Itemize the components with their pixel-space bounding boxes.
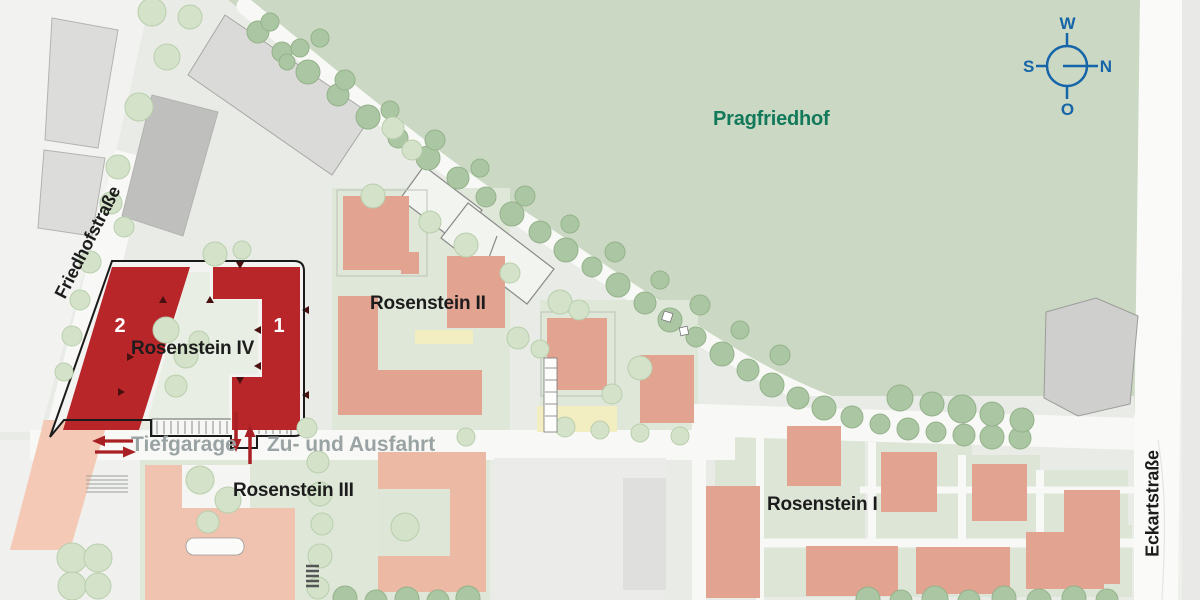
building-number-1: 1: [267, 315, 291, 338]
compass-rose-icon: W S N O: [1020, 16, 1115, 120]
compass-east: O: [1020, 100, 1115, 120]
compass-north: N: [1100, 57, 1112, 77]
church-building: [1044, 298, 1138, 416]
building-number-2: 2: [108, 315, 132, 338]
compass-west: W: [1020, 14, 1115, 34]
label-rosenstein-i: Rosenstein I: [767, 494, 878, 516]
label-rosenstein-iii: Rosenstein III: [233, 480, 354, 502]
site-plan: Pragfriedhof Rosenstein IV Rosenstein II…: [0, 0, 1200, 600]
label-eckartstrasse: Eckartstraße: [1143, 419, 1164, 589]
plaza: [494, 458, 666, 598]
label-rosenstein-iv: Rosenstein IV: [131, 338, 254, 360]
label-rosenstein-ii: Rosenstein II: [370, 293, 486, 315]
label-tiefgarage: Tiefgarage Zu- und Ausfahrt: [131, 433, 435, 457]
compass-south: S: [1023, 57, 1034, 77]
label-tiefgarage-suffix: Zu- und Ausfahrt: [267, 433, 435, 457]
label-tiefgarage-prefix: Tiefgarage: [131, 433, 237, 457]
label-pragfriedhof: Pragfriedhof: [713, 108, 830, 131]
